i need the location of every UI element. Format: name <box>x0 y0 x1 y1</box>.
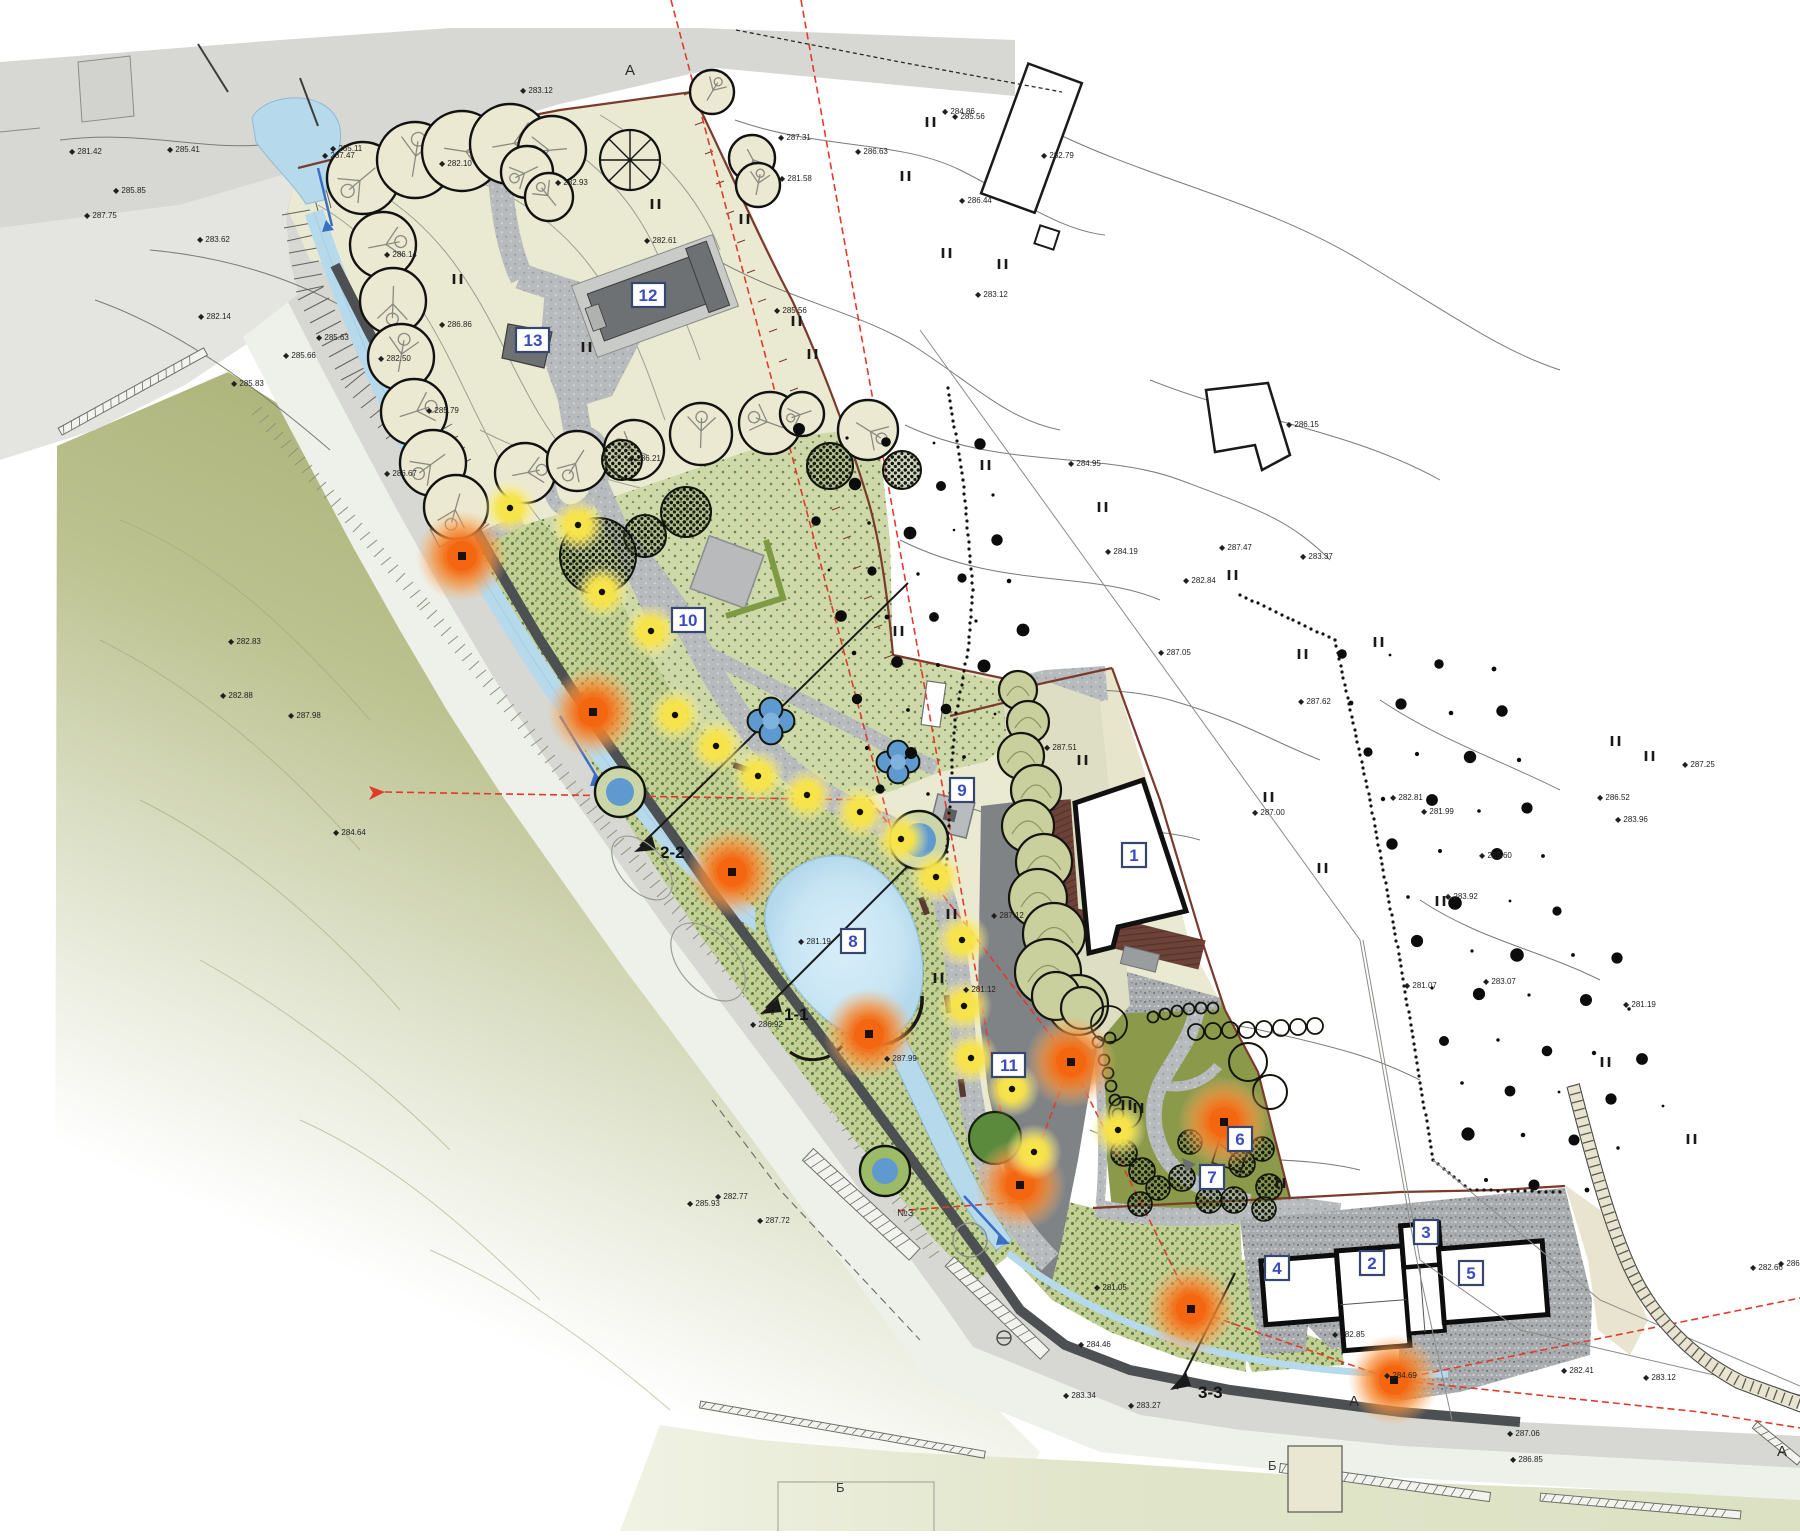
svg-text:◆ 285.41: ◆ 285.41 <box>167 145 200 154</box>
svg-text:◆ 285.85: ◆ 285.85 <box>113 186 146 195</box>
svg-text:◆ 286.15: ◆ 286.15 <box>1286 420 1319 429</box>
svg-text:◆ 282.41: ◆ 282.41 <box>1561 1366 1594 1375</box>
svg-text:◆ 285.56: ◆ 285.56 <box>774 306 807 315</box>
svg-text:◆ 287.72: ◆ 287.72 <box>757 1216 790 1225</box>
svg-text:6: 6 <box>1235 1130 1244 1149</box>
svg-text:◆ 281.05: ◆ 281.05 <box>1094 1283 1127 1292</box>
svg-text:◆ 285.79: ◆ 285.79 <box>426 406 459 415</box>
svg-text:13: 13 <box>524 331 543 350</box>
svg-text:◆ 287.62: ◆ 287.62 <box>1298 697 1331 706</box>
svg-text:◆ 286.67: ◆ 286.67 <box>384 469 417 478</box>
svg-text:◆ 286.44: ◆ 286.44 <box>959 196 992 205</box>
svg-text:◆ 282.84: ◆ 282.84 <box>1183 576 1216 585</box>
svg-text:◆ 282.14: ◆ 282.14 <box>198 312 231 321</box>
svg-text:◆ 283.12: ◆ 283.12 <box>520 86 553 95</box>
svg-text:◆ 284.46: ◆ 284.46 <box>1078 1340 1111 1349</box>
svg-text:9: 9 <box>957 781 966 800</box>
svg-text:3-3: 3-3 <box>1198 1383 1223 1402</box>
svg-text:1: 1 <box>1129 846 1138 865</box>
svg-text:◆ 284.95: ◆ 284.95 <box>1068 459 1101 468</box>
svg-text:◆ 281.19: ◆ 281.19 <box>798 937 831 946</box>
svg-text:◆ 282.83: ◆ 282.83 <box>228 637 261 646</box>
svg-text:12: 12 <box>639 286 658 305</box>
svg-text:◆ 285.56: ◆ 285.56 <box>952 112 985 121</box>
svg-text:◆ 285.83: ◆ 285.83 <box>231 379 264 388</box>
svg-text:◆ 283.12: ◆ 283.12 <box>1643 1373 1676 1382</box>
svg-text:◆ 282.77: ◆ 282.77 <box>715 1192 748 1201</box>
svg-text:◆ 284.19: ◆ 284.19 <box>1105 547 1138 556</box>
svg-text:◆ 281.58: ◆ 281.58 <box>779 174 812 183</box>
svg-text:◆ 286.85: ◆ 286.85 <box>1510 1455 1543 1464</box>
svg-text:◆ 281.12: ◆ 281.12 <box>963 985 996 994</box>
svg-text:◆ 283.12: ◆ 283.12 <box>975 290 1008 299</box>
svg-text:◆ 287.47: ◆ 287.47 <box>1219 543 1252 552</box>
svg-text:◆ 287.51: ◆ 287.51 <box>1044 743 1077 752</box>
svg-text:11: 11 <box>1000 1056 1018 1075</box>
svg-text:◆ 283.07: ◆ 283.07 <box>1483 977 1516 986</box>
svg-text:◆ 287.99: ◆ 287.99 <box>884 1054 917 1063</box>
svg-text:◆ 286.21: ◆ 286.21 <box>628 454 661 463</box>
svg-text:◆ 283.27: ◆ 283.27 <box>1128 1401 1161 1410</box>
svg-text:A: A <box>625 62 635 79</box>
svg-text:◆ 287.25: ◆ 287.25 <box>1682 760 1715 769</box>
svg-text:7: 7 <box>1207 1168 1216 1187</box>
svg-text:◆ 286.92: ◆ 286.92 <box>750 1020 783 1029</box>
svg-text:3: 3 <box>1421 1223 1430 1242</box>
svg-text:◆ 287.98: ◆ 287.98 <box>288 711 321 720</box>
svg-text:◆ 286.09: ◆ 286.09 <box>1778 1259 1800 1268</box>
svg-text:◆ 285.11: ◆ 285.11 <box>330 144 363 153</box>
svg-text:10: 10 <box>679 611 698 630</box>
svg-text:5: 5 <box>1466 1264 1475 1283</box>
svg-text:◆ 287.00: ◆ 287.00 <box>1252 808 1285 817</box>
svg-text:◆ 281.99: ◆ 281.99 <box>1421 807 1454 816</box>
svg-text:◆ 282.50: ◆ 282.50 <box>378 354 411 363</box>
svg-text:◆ 283.37: ◆ 283.37 <box>1300 552 1333 561</box>
svg-text:4: 4 <box>1272 1259 1282 1278</box>
svg-text:◆ 284.64: ◆ 284.64 <box>333 828 366 837</box>
svg-text:◆ 281.19: ◆ 281.19 <box>1623 1000 1656 1009</box>
svg-text:◆ 283.62: ◆ 283.62 <box>197 235 230 244</box>
svg-text:2: 2 <box>1367 1254 1376 1273</box>
svg-text:№3: №3 <box>897 1208 914 1219</box>
svg-text:◆ 282.93: ◆ 282.93 <box>555 178 588 187</box>
svg-text:8: 8 <box>848 932 857 951</box>
svg-text:◆ 281.07: ◆ 281.07 <box>1404 981 1437 990</box>
svg-text:◆ 287.06: ◆ 287.06 <box>1507 1429 1540 1438</box>
svg-text:◆ 287.05: ◆ 287.05 <box>1158 648 1191 657</box>
svg-text:A: A <box>1349 1393 1359 1410</box>
svg-text:◆ 287.75: ◆ 287.75 <box>84 211 117 220</box>
svg-text:◆ 286.63: ◆ 286.63 <box>855 147 888 156</box>
svg-text:◆ 282.61: ◆ 282.61 <box>644 236 677 245</box>
svg-text:◆ 285.63: ◆ 285.63 <box>316 333 349 342</box>
svg-text:A: A <box>1777 1443 1787 1460</box>
svg-text:Б: Б <box>1268 1458 1277 1473</box>
svg-text:◆ 286.86: ◆ 286.86 <box>439 320 472 329</box>
svg-text:◆ 286.52: ◆ 286.52 <box>1597 793 1630 802</box>
svg-text:◆ 283.96: ◆ 283.96 <box>1615 815 1648 824</box>
svg-text:◆ 283.92: ◆ 283.92 <box>1445 892 1478 901</box>
svg-text:◆ 281.42: ◆ 281.42 <box>69 147 102 156</box>
svg-text:◆ 282.81: ◆ 282.81 <box>1390 793 1423 802</box>
svg-text:◆ 287.31: ◆ 287.31 <box>778 133 811 142</box>
svg-text:◆ 283.34: ◆ 283.34 <box>1063 1391 1096 1400</box>
svg-text:◆ 282.85: ◆ 282.85 <box>1332 1330 1365 1339</box>
svg-text:◆ 287.12: ◆ 287.12 <box>991 911 1024 920</box>
svg-text:◆ 285.60: ◆ 285.60 <box>1479 851 1512 860</box>
svg-text:1-1: 1-1 <box>784 1005 809 1024</box>
svg-text:◆ 282.88: ◆ 282.88 <box>220 691 253 700</box>
svg-text:◆ 285.66: ◆ 285.66 <box>283 351 316 360</box>
svg-text:◆ 282.79: ◆ 282.79 <box>1041 151 1074 160</box>
svg-text:◆ 286.14: ◆ 286.14 <box>384 250 417 259</box>
svg-text:◆ 282.10: ◆ 282.10 <box>439 159 472 168</box>
svg-text:◆ 284.69: ◆ 284.69 <box>1384 1371 1417 1380</box>
